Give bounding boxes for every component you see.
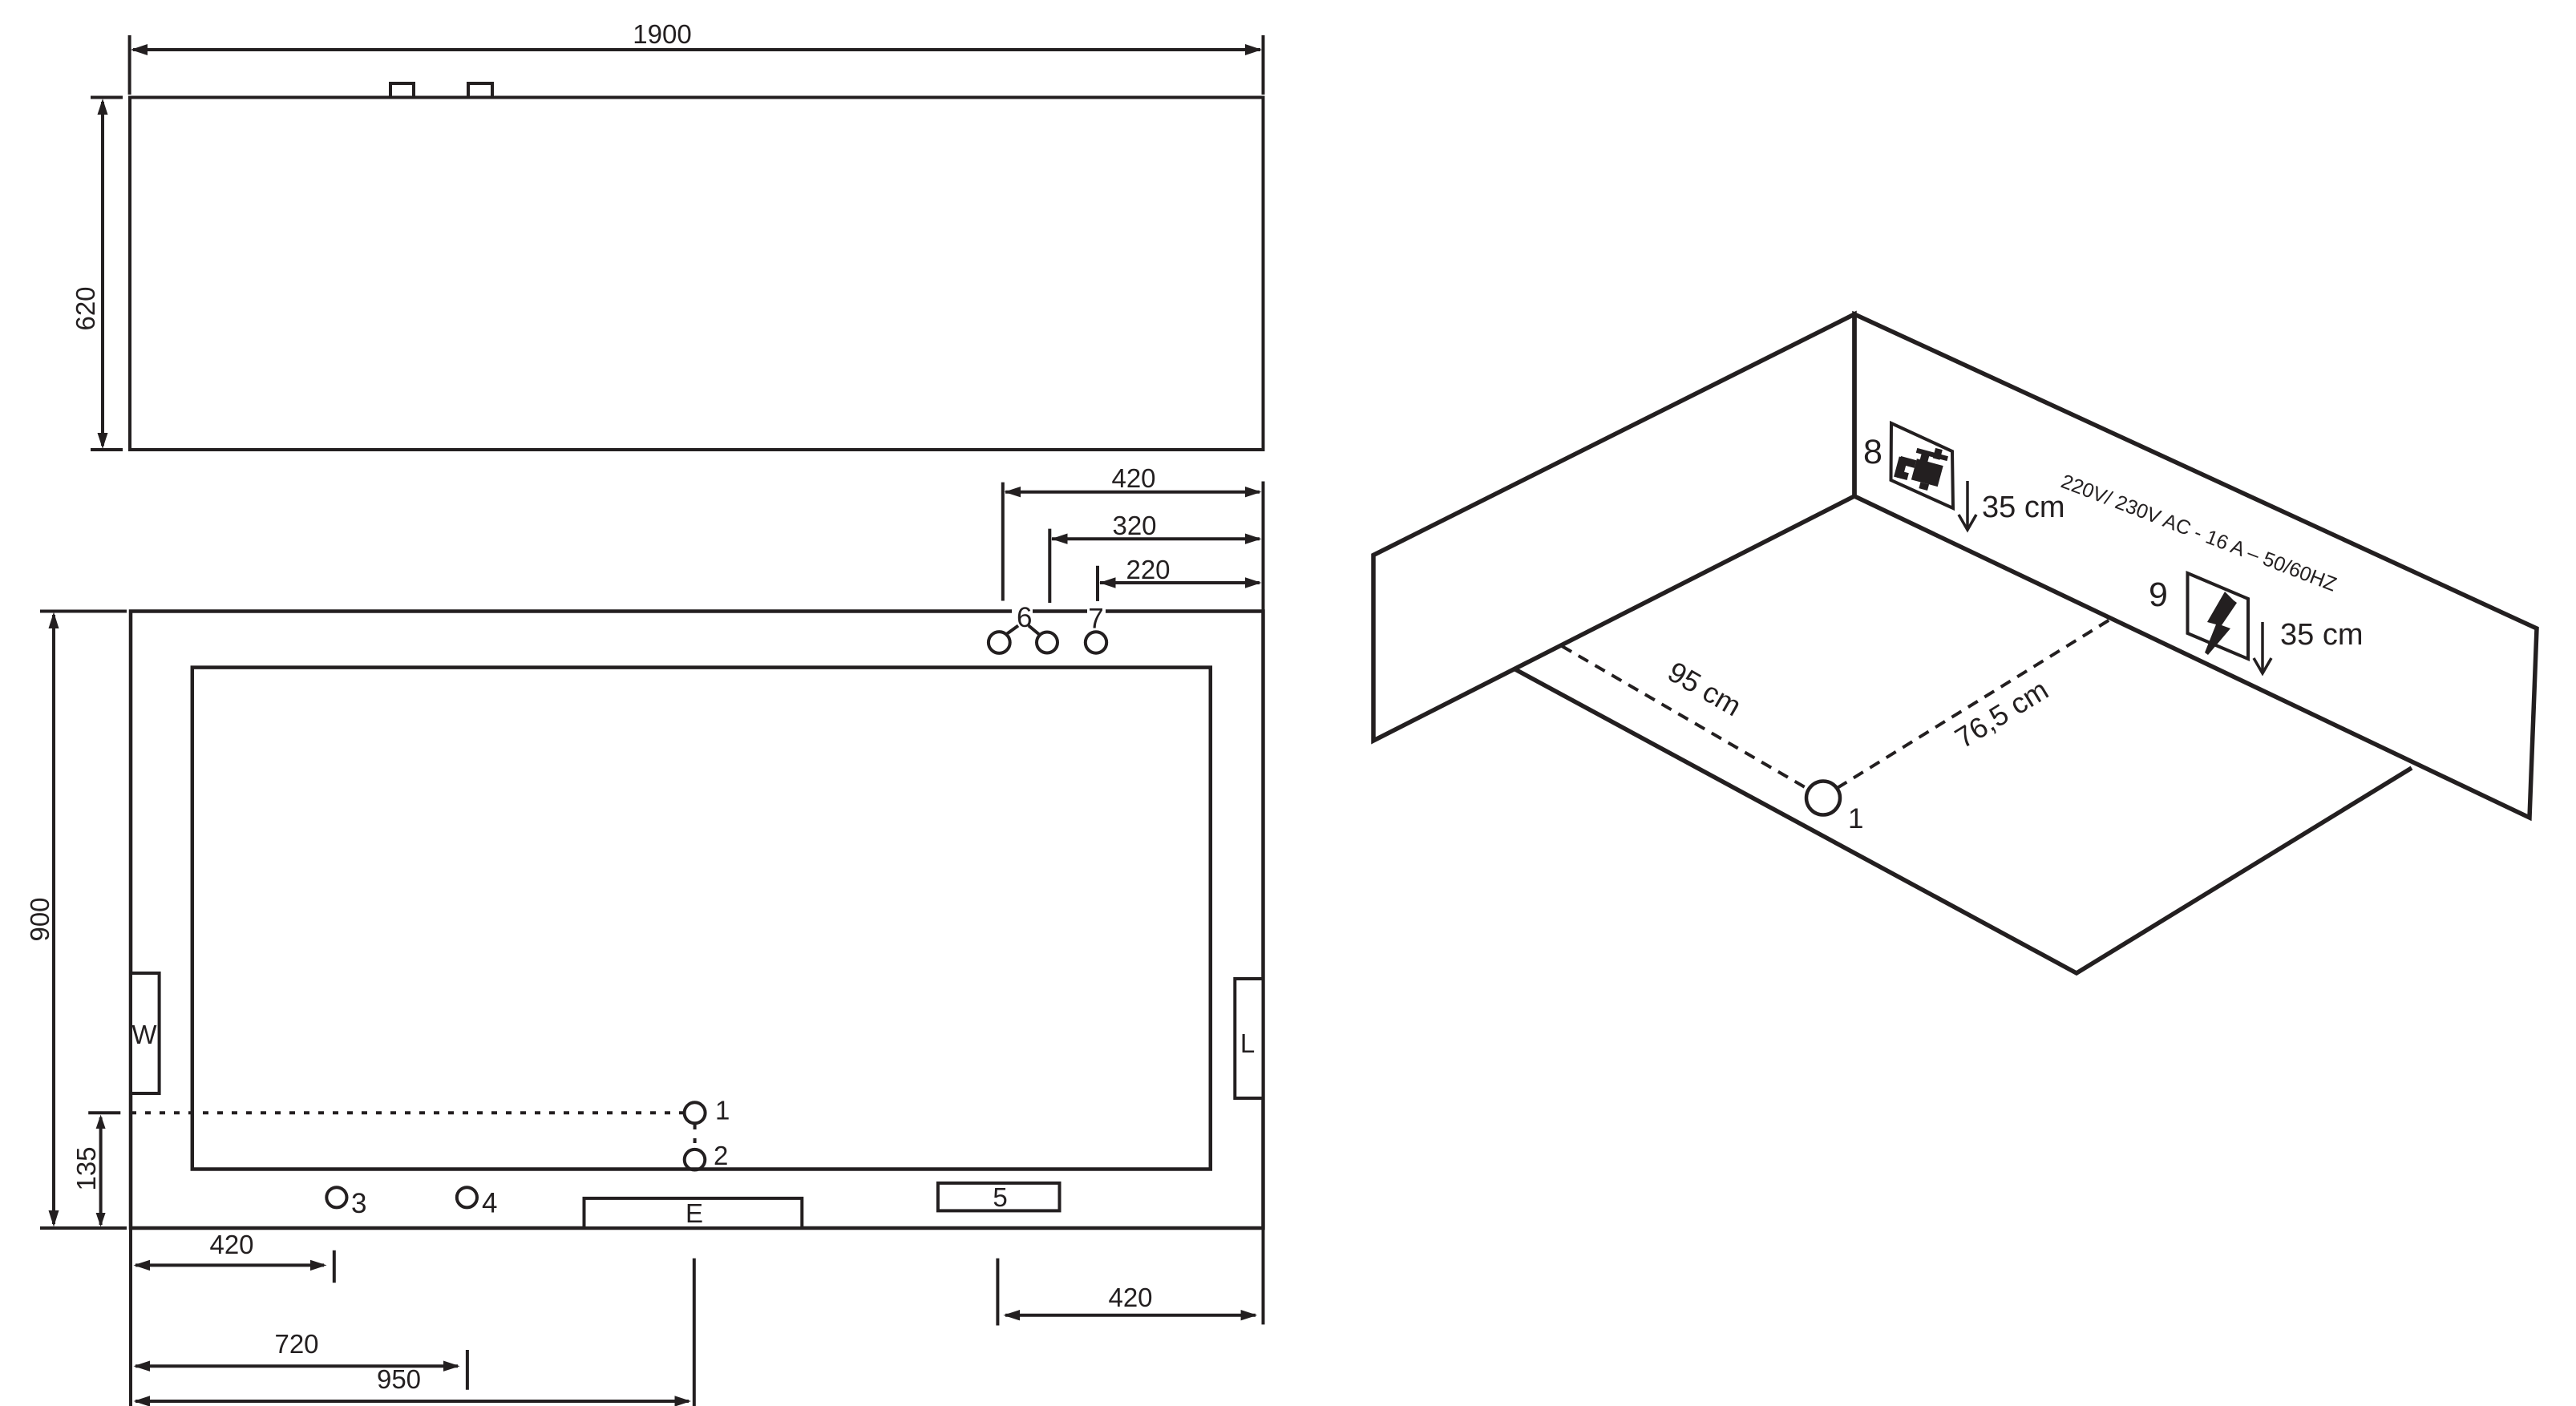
svg-text:900: 900 bbox=[25, 897, 55, 941]
svg-text:L: L bbox=[1240, 1028, 1255, 1058]
svg-text:420: 420 bbox=[1108, 1283, 1152, 1312]
svg-text:35 cm: 35 cm bbox=[2280, 618, 2363, 652]
svg-text:320: 320 bbox=[1112, 511, 1156, 540]
svg-text:1: 1 bbox=[715, 1096, 730, 1125]
svg-text:E: E bbox=[685, 1198, 703, 1228]
svg-text:1: 1 bbox=[1848, 803, 1863, 834]
svg-text:135: 135 bbox=[71, 1146, 101, 1190]
svg-text:6: 6 bbox=[1017, 602, 1032, 633]
svg-text:2: 2 bbox=[714, 1141, 728, 1170]
svg-text:720: 720 bbox=[274, 1329, 318, 1359]
svg-text:35 cm: 35 cm bbox=[1982, 491, 2064, 524]
svg-text:4: 4 bbox=[482, 1188, 497, 1219]
svg-text:220: 220 bbox=[1126, 555, 1170, 584]
svg-text:W: W bbox=[131, 1020, 157, 1049]
svg-text:9: 9 bbox=[2149, 576, 2168, 614]
svg-text:5: 5 bbox=[993, 1182, 1007, 1212]
svg-text:1900: 1900 bbox=[633, 19, 691, 49]
svg-text:420: 420 bbox=[1111, 463, 1155, 493]
svg-text:620: 620 bbox=[71, 286, 100, 330]
svg-text:420: 420 bbox=[209, 1230, 253, 1259]
svg-text:950: 950 bbox=[377, 1364, 421, 1394]
svg-text:3: 3 bbox=[351, 1188, 366, 1219]
svg-text:7: 7 bbox=[1088, 604, 1103, 635]
svg-text:8: 8 bbox=[1863, 433, 1882, 471]
